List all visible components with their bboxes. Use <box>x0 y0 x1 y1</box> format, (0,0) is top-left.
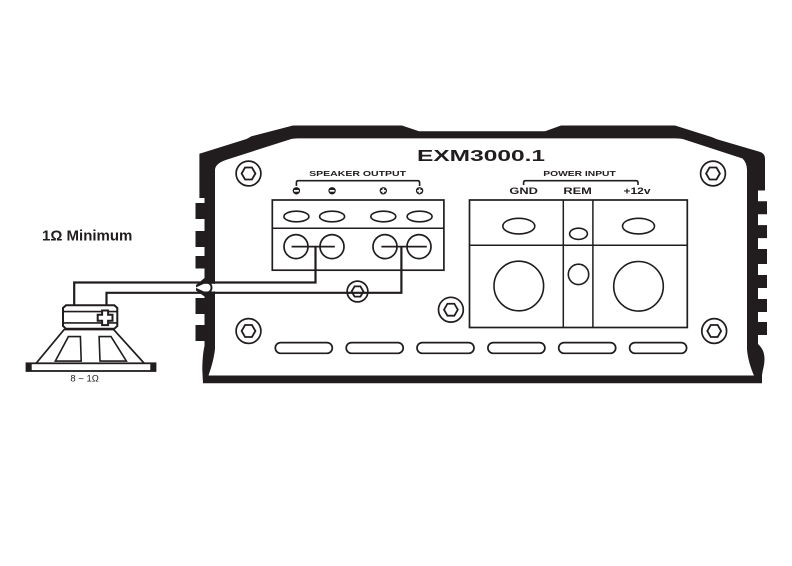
svg-text:+12v: +12v <box>624 186 651 196</box>
svg-text:1Ω Minimum: 1Ω Minimum <box>42 228 132 245</box>
svg-text:EXM3000.1: EXM3000.1 <box>417 148 546 165</box>
svg-text:8 ~ 1Ω: 8 ~ 1Ω <box>70 374 99 385</box>
svg-text:SPEAKER OUTPUT: SPEAKER OUTPUT <box>309 169 407 178</box>
svg-text:POWER INPUT: POWER INPUT <box>543 169 616 178</box>
svg-text:GND: GND <box>509 186 538 196</box>
svg-text:REM: REM <box>563 186 592 196</box>
